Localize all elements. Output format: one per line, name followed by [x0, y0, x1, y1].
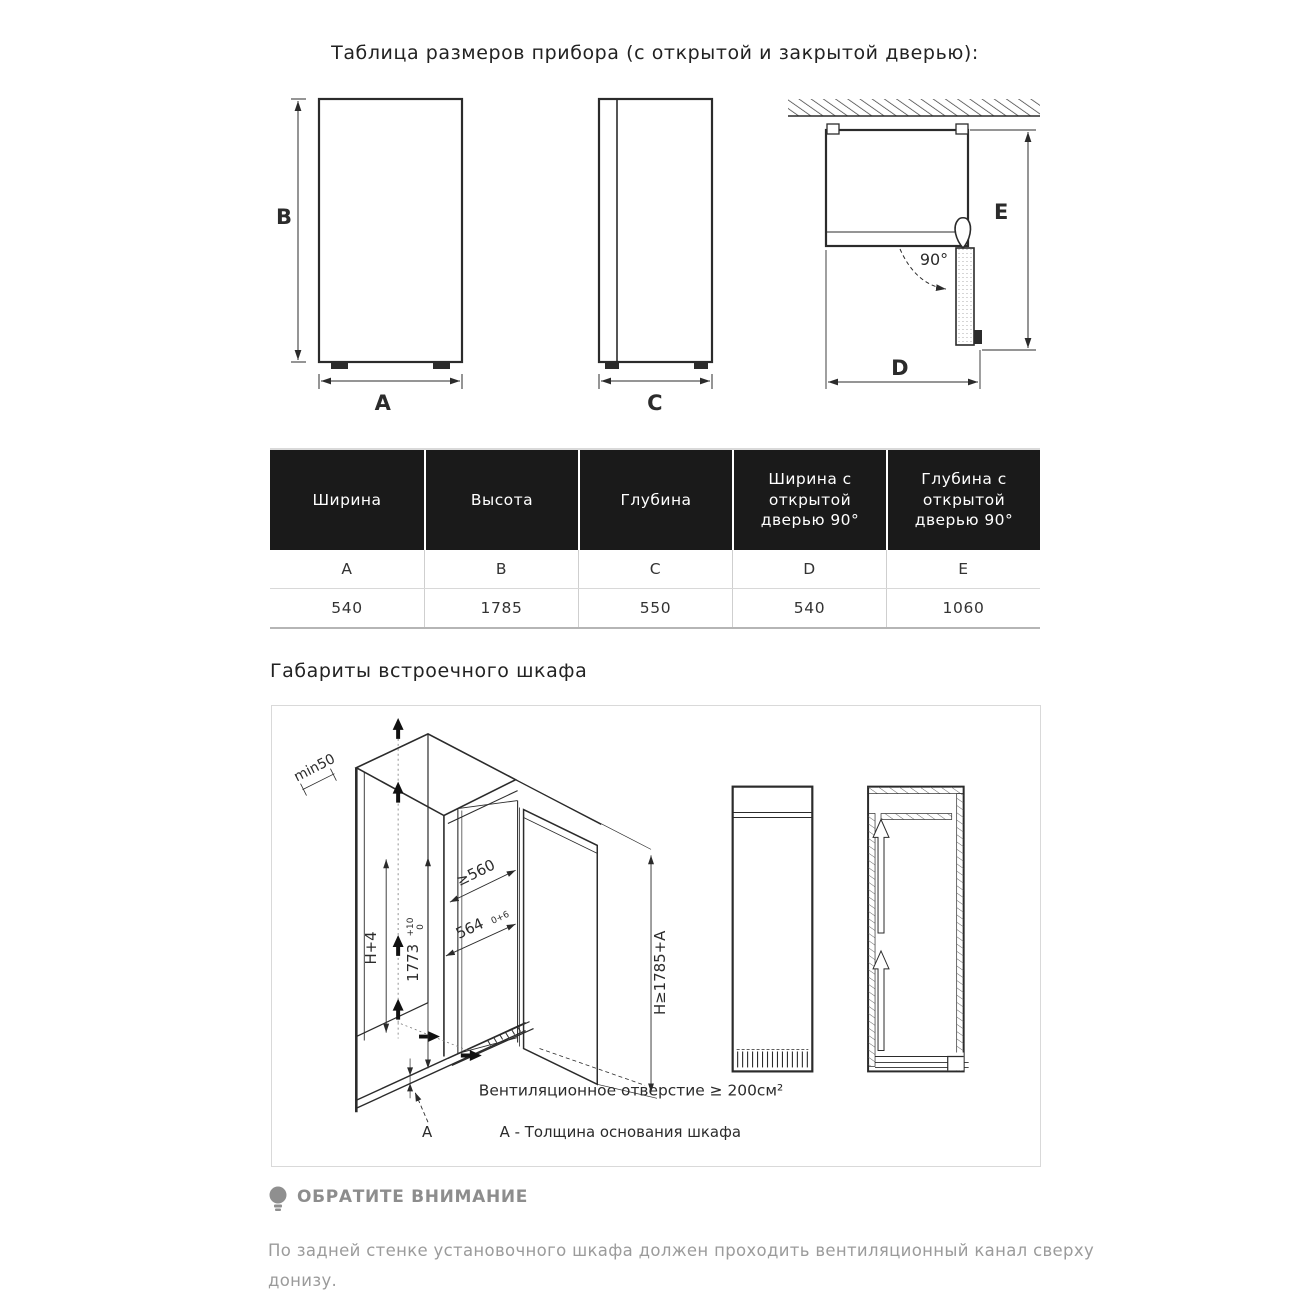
- label-depth-c: C: [647, 391, 663, 415]
- note-body: По задней стенке установочного шкафа дол…: [268, 1236, 1128, 1295]
- appliance-dimension-diagrams: B A C 90°: [270, 88, 1050, 423]
- label-ventilation-opening: Вентиляционное отверстие ≥ 200см²: [479, 1081, 783, 1099]
- table-value-row: 540 1785 550 540 1060: [270, 589, 1040, 627]
- value-cell-e: 1060: [886, 589, 1040, 627]
- label-width-a: A: [375, 391, 392, 415]
- value-cell-c: 550: [578, 589, 732, 627]
- cabinet-front-view: [733, 787, 813, 1072]
- cabinet-side-section-view: [868, 787, 969, 1072]
- table-header-row: Ширина Высота Глубина Ширина с открытой …: [270, 450, 1040, 550]
- lightbulb-icon: [268, 1186, 288, 1212]
- front-vent-grille: [738, 1051, 808, 1067]
- header-depth-door-open: Глубина с открытой дверью 90°: [886, 450, 1040, 550]
- label-door-depth-e: E: [994, 200, 1009, 224]
- label-base-thickness-a: А: [422, 1123, 433, 1141]
- cabinet-door-panel: [524, 810, 598, 1085]
- side-view-diagram: C: [599, 99, 712, 415]
- header-height: Высота: [424, 450, 578, 550]
- label-564-tolerance: 0+6: [490, 910, 512, 927]
- dimensions-table: Ширина Высота Глубина Ширина с открытой …: [270, 448, 1040, 629]
- page-title: Таблица размеров прибора (с открытой и з…: [270, 42, 1040, 64]
- label-min50: min50: [291, 751, 337, 785]
- label-angle-90: 90°: [920, 250, 948, 269]
- cabinet-drawing-frame: min50 H+4 1773 +10 0 ≥560 564 0+6 H≥1785…: [271, 705, 1041, 1167]
- label-h1785-plus-a: H≥1785+A: [651, 930, 669, 1015]
- value-cell-d: 540: [732, 589, 886, 627]
- label-h-plus-4: H+4: [362, 931, 380, 964]
- value-cell-b: 1785: [424, 589, 578, 627]
- letter-cell-a: A: [270, 550, 424, 588]
- front-view-diagram: B A: [276, 99, 462, 415]
- cabinet-drawing: min50 H+4 1773 +10 0 ≥560 564 0+6 H≥1785…: [272, 706, 1040, 1164]
- letter-cell-e: E: [886, 550, 1040, 588]
- manual-page: Таблица размеров прибора (с открытой и з…: [0, 0, 1300, 1300]
- note-title: ОБРАТИТЕ ВНИМАНИЕ: [297, 1187, 528, 1207]
- letter-cell-c: C: [578, 550, 732, 588]
- label-base-note: А - Толщина основания шкафа: [500, 1123, 741, 1141]
- table-letter-row: A B C D E: [270, 550, 1040, 589]
- label-1773-lower-tolerance: 0: [416, 924, 426, 930]
- label-1773: 1773: [404, 944, 422, 982]
- letter-cell-b: B: [424, 550, 578, 588]
- header-depth: Глубина: [578, 450, 732, 550]
- label-height-b: B: [276, 205, 292, 229]
- header-width-door-open: Ширина с открытой дверью 90°: [732, 450, 886, 550]
- letter-cell-d: D: [732, 550, 886, 588]
- label-1773-upper-tolerance: +10: [406, 917, 416, 936]
- open-door-top-view-diagram: 90° E D: [788, 99, 1040, 389]
- label-door-width-d: D: [891, 356, 909, 380]
- header-width: Ширина: [270, 450, 424, 550]
- section-title-cabinet: Габариты встроечного шкафа: [270, 660, 587, 682]
- value-cell-a: 540: [270, 589, 424, 627]
- label-560: ≥560: [453, 856, 498, 890]
